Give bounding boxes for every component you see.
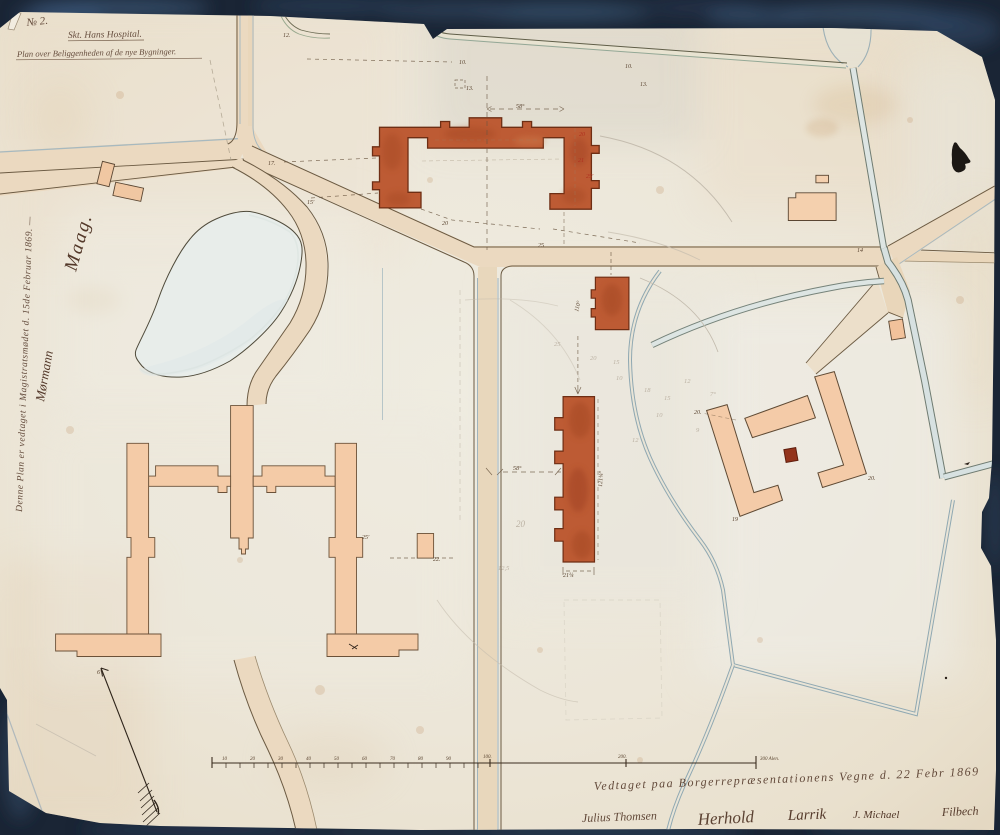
svg-text:17.: 17. (268, 161, 276, 167)
svg-text:13.: 13. (466, 86, 474, 92)
svg-text:20: 20 (579, 132, 585, 138)
svg-text:10: 10 (656, 412, 663, 419)
svg-text:70: 70 (390, 757, 396, 762)
svg-text:Skt. Hans Hospital.: Skt. Hans Hospital. (68, 30, 142, 41)
svg-text:14: 14 (857, 247, 863, 254)
svg-text:15′: 15′ (307, 200, 315, 206)
svg-text:Filbech: Filbech (941, 804, 979, 819)
svg-text:25: 25 (554, 341, 561, 348)
svg-text:300 Alen.: 300 Alen. (760, 757, 779, 762)
svg-text:20: 20 (516, 519, 526, 529)
svg-text:20: 20 (250, 757, 256, 762)
svg-text:22.: 22. (433, 557, 441, 563)
svg-text:25: 25 (538, 243, 544, 249)
svg-text:12,5: 12,5 (498, 565, 510, 572)
svg-text:80: 80 (418, 757, 424, 762)
svg-text:6′: 6′ (97, 670, 102, 676)
svg-text:7°: 7° (710, 391, 716, 398)
svg-text:25′: 25′ (586, 174, 594, 180)
svg-text:58°: 58° (513, 465, 522, 472)
svg-text:20.: 20. (694, 410, 702, 416)
svg-text:18: 18 (644, 387, 651, 394)
svg-text:40: 40 (306, 757, 312, 762)
svg-text:J. Michael: J. Michael (853, 809, 899, 821)
svg-text:Julius Thomsen: Julius Thomsen (582, 808, 657, 825)
svg-text:№ 2.: № 2. (25, 15, 49, 29)
svg-text:13.: 13. (640, 82, 648, 88)
svg-text:10: 10 (616, 375, 623, 382)
svg-text:Herhold: Herhold (696, 807, 755, 829)
svg-text:10.: 10. (459, 60, 467, 66)
svg-text:21¼: 21¼ (563, 573, 574, 579)
svg-text:20: 20 (590, 355, 597, 362)
svg-text:60: 60 (362, 757, 368, 762)
svg-text:10: 10 (222, 757, 228, 762)
svg-text:12.: 12. (283, 33, 291, 39)
svg-text:12: 12 (632, 437, 639, 444)
svg-text:200.: 200. (618, 755, 627, 760)
svg-text:90: 90 (446, 757, 452, 762)
svg-text:58°: 58° (516, 103, 525, 110)
svg-text:121¼°: 121¼° (597, 470, 605, 487)
svg-text:30: 30 (278, 757, 284, 762)
svg-text:50: 50 (334, 757, 340, 762)
svg-text:15: 15 (664, 395, 671, 402)
svg-text:100.: 100. (483, 755, 492, 760)
svg-text:15: 15 (613, 359, 620, 366)
svg-text:25′: 25′ (362, 535, 370, 541)
svg-text:12: 12 (684, 378, 691, 385)
svg-text:19: 19 (732, 517, 738, 523)
svg-text:10.: 10. (625, 64, 633, 70)
svg-text:Larrik: Larrik (787, 807, 827, 824)
svg-text:21: 21 (578, 158, 584, 164)
svg-text:20: 20 (442, 221, 448, 227)
svg-text:20.: 20. (868, 476, 876, 482)
